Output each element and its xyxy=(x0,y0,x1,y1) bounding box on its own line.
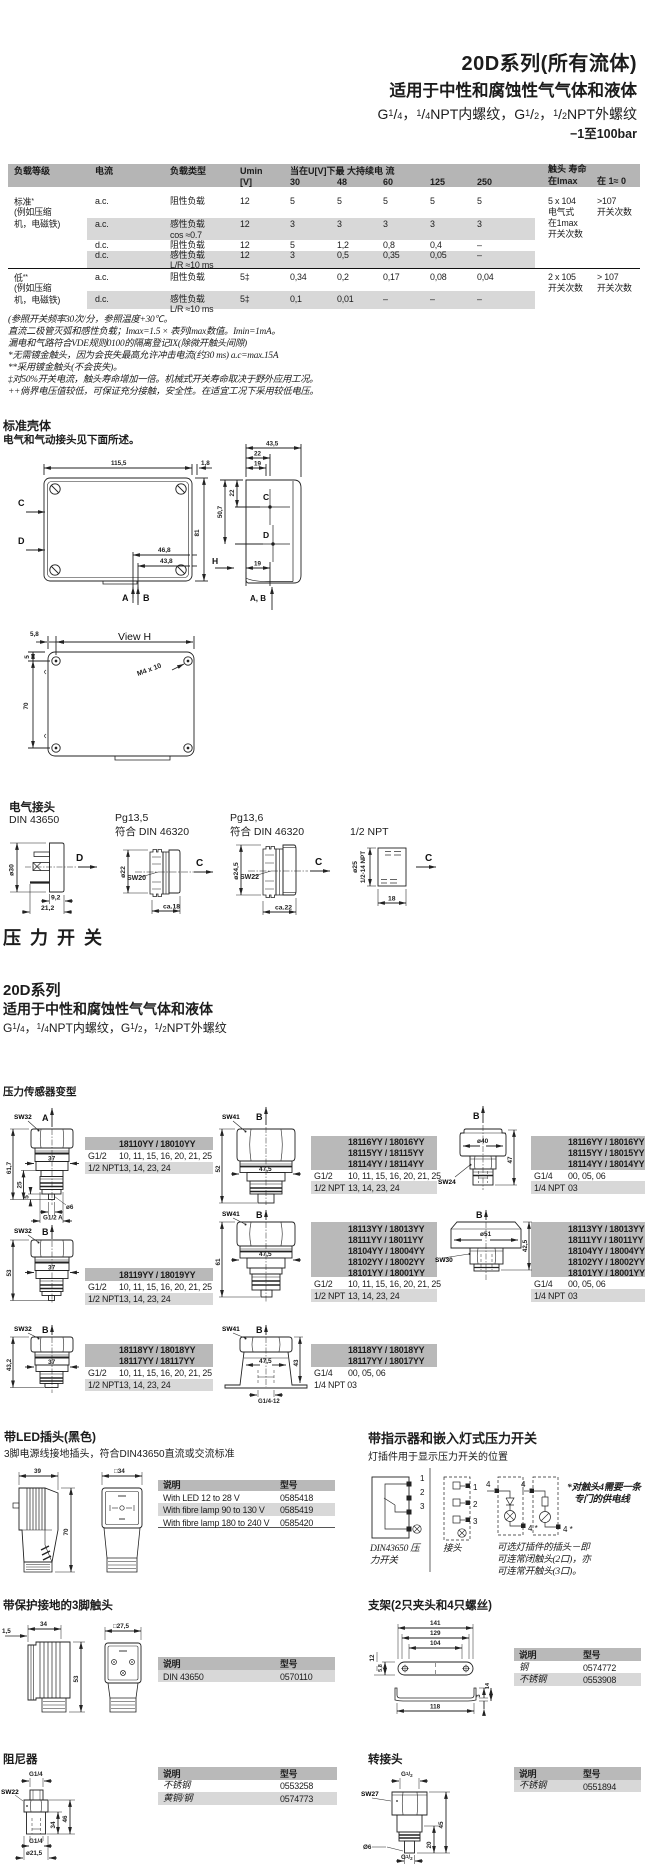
svg-text:129: 129 xyxy=(430,1630,441,1637)
svg-text:4 *: 4 * xyxy=(563,1525,573,1534)
svg-text:B: B xyxy=(476,1210,483,1220)
svg-text:5,8: 5,8 xyxy=(378,1664,384,1672)
svg-text:ø6: ø6 xyxy=(66,1204,74,1211)
svg-text:ca.22: ca.22 xyxy=(275,905,292,912)
svg-text:50,7: 50,7 xyxy=(217,505,224,518)
svg-text:C: C xyxy=(18,498,25,508)
svg-text:19: 19 xyxy=(254,561,262,568)
svg-text:ø25: ø25 xyxy=(352,861,359,873)
svg-text:43,2: 43,2 xyxy=(6,1358,13,1371)
svg-text:B: B xyxy=(256,1325,263,1335)
svg-text:37: 37 xyxy=(48,1265,56,1272)
svg-text:12: 12 xyxy=(369,1654,376,1662)
svg-text:70: 70 xyxy=(23,702,30,710)
svg-text:□27,5: □27,5 xyxy=(113,1623,130,1630)
svg-text:C: C xyxy=(315,857,322,868)
svg-text:1: 1 xyxy=(420,1474,425,1483)
svg-text:H: H xyxy=(212,556,218,566)
svg-text:G1/2: G1/2 xyxy=(401,1771,413,1779)
svg-text:B: B xyxy=(256,1210,263,1220)
svg-text:22: 22 xyxy=(254,451,262,458)
svg-text:SW41: SW41 xyxy=(222,1326,240,1333)
svg-text:1/2-14 NPT: 1/2-14 NPT xyxy=(360,851,367,883)
svg-text:SW41: SW41 xyxy=(222,1114,240,1121)
svg-text:ø21,5: ø21,5 xyxy=(26,1850,43,1857)
svg-text:61: 61 xyxy=(215,1258,222,1266)
svg-text:47,5: 47,5 xyxy=(259,1358,272,1365)
svg-text:B: B xyxy=(42,1325,49,1335)
svg-text:81: 81 xyxy=(194,529,201,537)
svg-text:61,7: 61,7 xyxy=(6,1161,13,1174)
svg-text:3: 3 xyxy=(473,1517,478,1526)
svg-text:G1/2 A: G1/2 A xyxy=(43,1215,63,1222)
svg-text:37: 37 xyxy=(48,1359,56,1366)
svg-text:ø51: ø51 xyxy=(480,1231,492,1238)
svg-text:SW22: SW22 xyxy=(240,874,259,881)
svg-text:53: 53 xyxy=(73,1675,80,1683)
svg-text:ø40: ø40 xyxy=(477,1138,489,1145)
svg-text:37: 37 xyxy=(48,1156,56,1163)
svg-text:SW22: SW22 xyxy=(1,1789,19,1796)
svg-text:19: 19 xyxy=(254,461,262,468)
svg-text:46: 46 xyxy=(62,1815,69,1823)
svg-text:141: 141 xyxy=(430,1620,441,1627)
svg-text:G1/4: G1/4 xyxy=(29,1771,43,1778)
svg-text:25: 25 xyxy=(17,1181,24,1189)
svg-text:18: 18 xyxy=(388,896,396,903)
svg-text:B: B xyxy=(42,1227,49,1237)
svg-text:104: 104 xyxy=(430,1640,441,1647)
svg-text:43,5: 43,5 xyxy=(266,441,279,448)
svg-text:1,5: 1,5 xyxy=(2,1628,11,1635)
svg-text:ø30: ø30 xyxy=(9,864,16,876)
svg-text:5: 5 xyxy=(24,1195,31,1199)
svg-text:14: 14 xyxy=(485,1682,491,1689)
svg-text:2: 2 xyxy=(473,1500,478,1509)
svg-text:□34: □34 xyxy=(114,1468,125,1475)
svg-text:SW32: SW32 xyxy=(14,1228,32,1235)
svg-text:C: C xyxy=(263,492,269,502)
svg-text:SW41: SW41 xyxy=(222,1211,240,1218)
svg-text:47,5: 47,5 xyxy=(259,1166,272,1173)
svg-text:SW27: SW27 xyxy=(361,1791,379,1798)
svg-text:47: 47 xyxy=(507,1156,514,1164)
svg-text:118: 118 xyxy=(430,1704,441,1711)
svg-text:52: 52 xyxy=(215,1165,222,1173)
svg-text:ca.18: ca.18 xyxy=(163,904,180,911)
svg-text:47,5: 47,5 xyxy=(259,1251,272,1258)
svg-text:21,2: 21,2 xyxy=(41,905,54,912)
svg-text:D: D xyxy=(76,853,83,864)
svg-text:5: 5 xyxy=(24,655,31,659)
svg-text:C: C xyxy=(196,858,203,869)
svg-text:70: 70 xyxy=(63,1528,70,1536)
svg-text:115,5: 115,5 xyxy=(111,460,127,467)
svg-text:4: 4 xyxy=(486,1480,491,1489)
svg-text:B: B xyxy=(473,1111,480,1121)
svg-text:G1/4: G1/4 xyxy=(29,1838,43,1845)
svg-text:34: 34 xyxy=(50,1821,57,1829)
svg-text:1,8: 1,8 xyxy=(201,460,210,467)
svg-text:D: D xyxy=(18,536,25,546)
svg-text:42,5: 42,5 xyxy=(522,1239,529,1252)
svg-text:A: A xyxy=(42,1113,49,1123)
svg-text:SW32: SW32 xyxy=(14,1114,32,1121)
svg-text:20: 20 xyxy=(426,1841,433,1849)
svg-text:45: 45 xyxy=(438,1821,445,1829)
svg-text:Ø6: Ø6 xyxy=(363,1844,372,1851)
svg-text:46,8: 46,8 xyxy=(158,547,171,554)
svg-text:A, B: A, B xyxy=(250,594,266,603)
svg-text:SW30: SW30 xyxy=(435,1257,453,1264)
svg-text:3: 3 xyxy=(420,1502,425,1511)
svg-text:22: 22 xyxy=(229,489,236,497)
svg-text:M4 x 10: M4 x 10 xyxy=(136,663,162,678)
svg-text:53: 53 xyxy=(6,1269,13,1277)
svg-text:G1/2: G1/2 xyxy=(401,1854,413,1862)
svg-text:B: B xyxy=(143,593,150,603)
svg-text:4 *: 4 * xyxy=(528,1524,538,1533)
svg-text:5,8: 5,8 xyxy=(30,631,39,638)
svg-text:1: 1 xyxy=(473,1483,478,1492)
svg-text:43,8: 43,8 xyxy=(160,558,173,565)
svg-text:4: 4 xyxy=(521,1480,526,1489)
svg-text:SW24: SW24 xyxy=(438,1179,456,1186)
svg-text:9,2: 9,2 xyxy=(51,895,61,902)
svg-text:SW32: SW32 xyxy=(14,1326,32,1333)
svg-text:A: A xyxy=(122,593,129,603)
svg-text:SW20: SW20 xyxy=(127,875,146,882)
svg-text:B: B xyxy=(256,1112,263,1122)
svg-text:ø22: ø22 xyxy=(120,866,127,878)
svg-text:3: 3 xyxy=(476,1694,482,1697)
svg-text:View H: View H xyxy=(118,631,151,643)
svg-text:34: 34 xyxy=(40,1621,48,1628)
svg-text:ø24,5: ø24,5 xyxy=(233,862,240,880)
svg-text:39: 39 xyxy=(34,1468,42,1475)
svg-text:2: 2 xyxy=(420,1488,425,1497)
svg-text:D: D xyxy=(263,530,269,540)
svg-text:G1/4-12: G1/4-12 xyxy=(258,1399,280,1405)
svg-text:43: 43 xyxy=(293,1359,300,1367)
svg-text:C: C xyxy=(425,853,432,864)
